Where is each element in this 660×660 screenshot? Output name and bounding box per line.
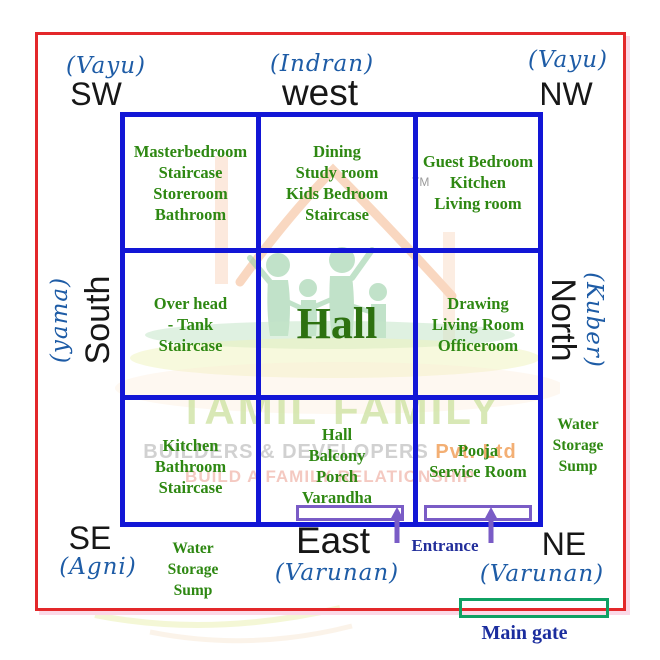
room-label: Over head bbox=[154, 293, 228, 314]
room-label: Study room bbox=[296, 162, 379, 183]
room-label: Kids Bedroom bbox=[286, 183, 388, 204]
sump-line: Sump bbox=[538, 456, 618, 477]
room-label: Pooja bbox=[458, 440, 498, 461]
water-storage-sump-bottom: Water Storage Sump bbox=[153, 538, 233, 601]
deity-label-ne: (Varunan) bbox=[480, 562, 604, 586]
cell-northeast: Pooja Service Room bbox=[418, 400, 538, 522]
cell-west: Dining Study room Kids Bedroom Staircase bbox=[261, 117, 418, 253]
entrance-arrow-icon bbox=[484, 507, 498, 543]
cell-north: Drawing Living Room Officeroom bbox=[418, 253, 538, 400]
room-label: Staircase bbox=[159, 477, 223, 498]
direction-label-ne: NE bbox=[542, 528, 586, 560]
room-label: Guest Bedroom bbox=[423, 151, 533, 172]
direction-label-sw: SW bbox=[70, 78, 122, 110]
room-label: Storeroom bbox=[153, 183, 228, 204]
room-label: Dining bbox=[313, 141, 361, 162]
sump-line: Water bbox=[153, 538, 233, 559]
room-label: Staircase bbox=[305, 204, 369, 225]
cell-northwest: Guest Bedroom Kitchen Living room bbox=[418, 117, 538, 253]
hall-label: Hall bbox=[297, 301, 378, 347]
room-label: Kitchen bbox=[450, 172, 506, 193]
deity-label-sw: (Vayu) bbox=[66, 54, 146, 78]
sump-line: Water bbox=[538, 414, 618, 435]
room-label: Kitchen bbox=[163, 435, 219, 456]
room-label: Bathroom bbox=[155, 204, 226, 225]
main-gate-label: Main gate bbox=[452, 622, 597, 645]
deity-label-nw: (Vayu) bbox=[528, 48, 608, 72]
sump-line: Storage bbox=[153, 559, 233, 580]
sump-line: Sump bbox=[153, 580, 233, 601]
room-label: Officeroom bbox=[438, 335, 518, 356]
entrance-arrow-icon bbox=[390, 507, 404, 543]
bottom-arcs-watermark bbox=[95, 608, 352, 641]
direction-label-se: SE bbox=[69, 522, 112, 554]
deity-label-east: (Varunan) bbox=[275, 561, 399, 585]
room-label: Staircase bbox=[159, 162, 223, 183]
room-label: Drawing bbox=[447, 293, 508, 314]
deity-label-se: (Agni) bbox=[59, 555, 136, 579]
cell-southwest-west: Masterbedroom Staircase Storeroom Bathro… bbox=[125, 117, 261, 253]
deity-label-south: (yama) bbox=[48, 277, 72, 363]
entrance-marker-northeast bbox=[424, 505, 532, 521]
direction-label-south: South bbox=[82, 276, 114, 365]
direction-label-east: East bbox=[296, 525, 370, 557]
entrance-label: Entrance bbox=[404, 536, 486, 556]
cell-east: Hall Balcony Porch Varandha bbox=[261, 400, 418, 522]
entrance-marker-east bbox=[296, 505, 404, 521]
room-label: Staircase bbox=[159, 335, 223, 356]
room-label: Living room bbox=[434, 193, 521, 214]
sump-line: Storage bbox=[538, 435, 618, 456]
water-storage-sump-right: Water Storage Sump bbox=[538, 414, 618, 477]
room-label: Hall bbox=[322, 424, 352, 445]
direction-label-nw: NW bbox=[539, 78, 592, 110]
cell-southeast: Kitchen Bathroom Staircase bbox=[125, 400, 261, 522]
room-label: Living Room bbox=[432, 314, 524, 335]
vastu-direction-chart: TM TAMIL FAMILY BUILDERS & DEVELOPERS Pv… bbox=[0, 0, 660, 660]
room-label: - Tank bbox=[168, 314, 213, 335]
room-label: Masterbedroom bbox=[134, 141, 247, 162]
direction-label-north: North bbox=[547, 278, 579, 361]
direction-label-west: west bbox=[282, 77, 358, 109]
room-label: Porch bbox=[316, 466, 358, 487]
main-gate-marker bbox=[459, 598, 609, 618]
cell-center-hall: Hall bbox=[261, 253, 418, 400]
cell-south: Over head - Tank Staircase bbox=[125, 253, 261, 400]
room-label: Service Room bbox=[429, 461, 527, 482]
room-label: Bathroom bbox=[155, 456, 226, 477]
room-grid: Masterbedroom Staircase Storeroom Bathro… bbox=[120, 112, 543, 527]
room-label: Balcony bbox=[309, 445, 366, 466]
deity-label-north: (Kuber) bbox=[582, 272, 606, 368]
